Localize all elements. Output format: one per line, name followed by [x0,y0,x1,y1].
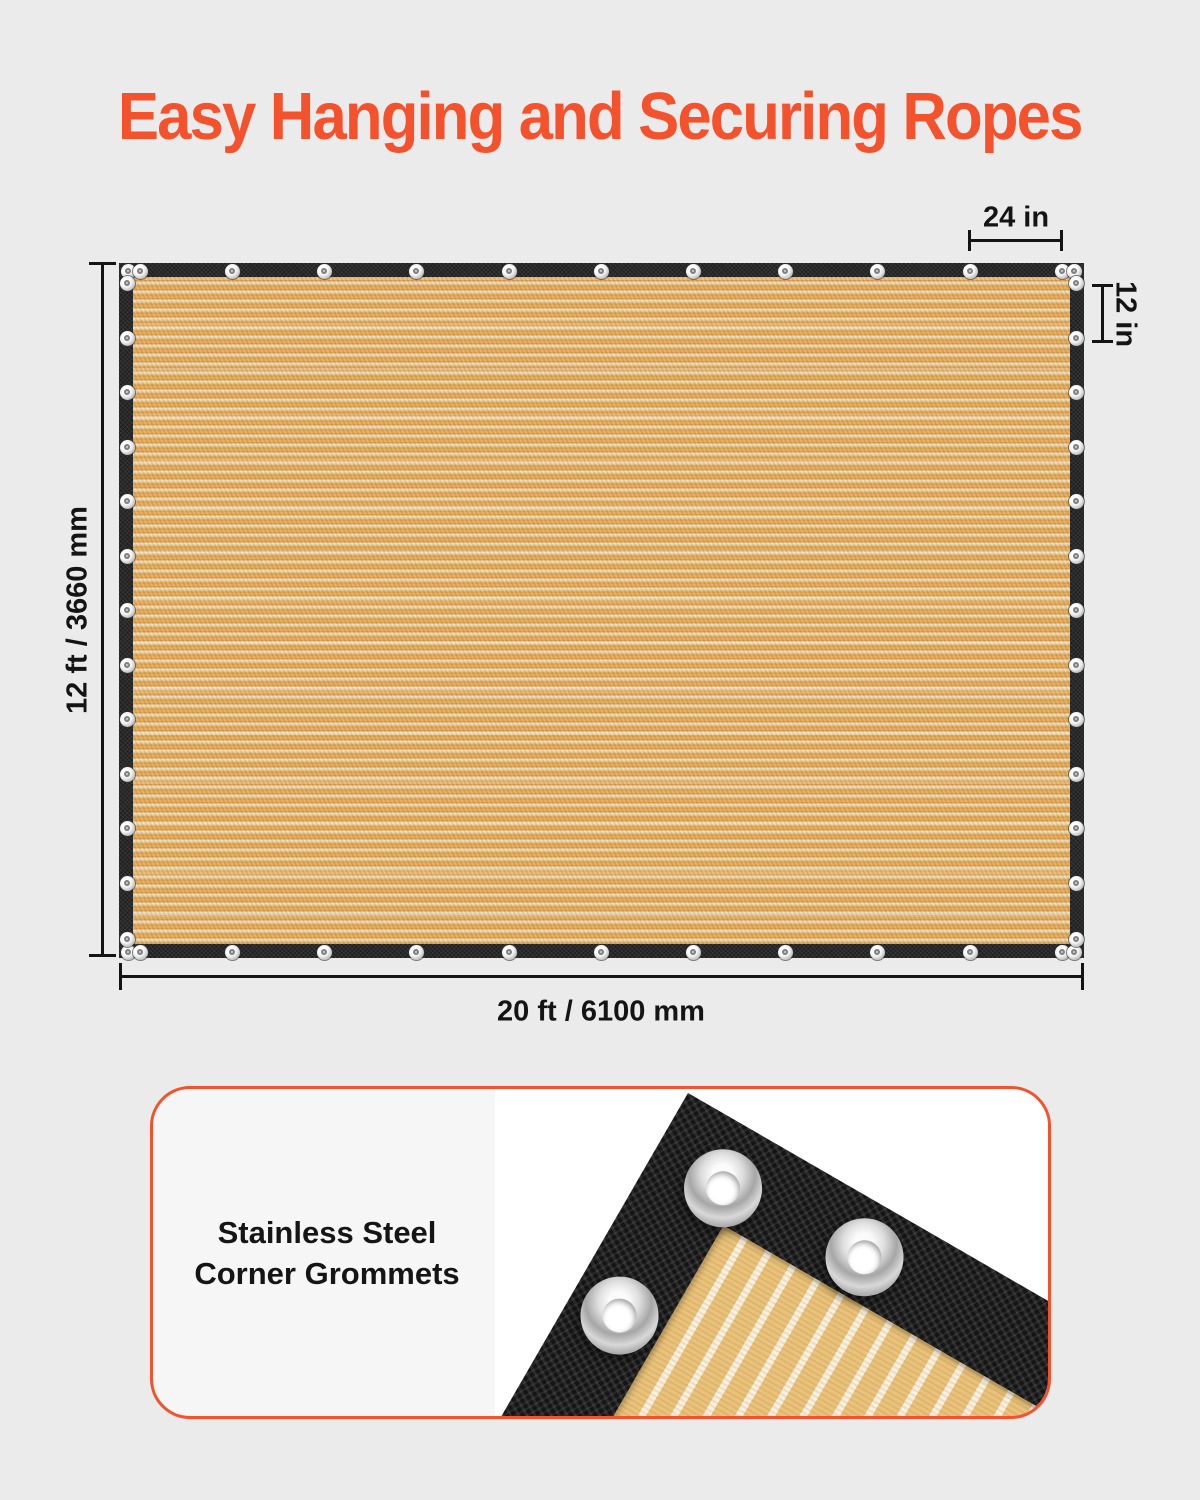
grommet-icon [120,821,135,836]
grommet-icon [120,876,135,891]
grommet-icon [1069,331,1084,346]
grommet-icon [1069,932,1084,947]
grommet-icon [120,549,135,564]
width-dim-tick-right [1081,963,1084,990]
top-spacing-dim-line [970,239,1063,242]
feature-card: Stainless Steel Corner Grommets [150,1086,1051,1419]
grommet-icon [133,264,148,279]
grommet-icon [120,494,135,509]
feature-caption-line2: Corner Grommets [194,1253,459,1294]
page-title-text: Easy Hanging and Securing Ropes [118,78,1082,155]
feature-caption: Stainless Steel Corner Grommets [153,1089,501,1416]
grommet-icon [1069,385,1084,400]
grommet-icon [1069,876,1084,891]
side-spacing-dim-line [1101,286,1104,342]
grommet-icon [1069,440,1084,455]
grommet-icon [670,1135,777,1242]
grommet-icon [120,440,135,455]
grommet-icon [963,945,978,960]
feature-caption-line1: Stainless Steel [218,1212,437,1253]
width-dim-line [119,975,1084,978]
grommet-icon [594,264,609,279]
corner-swatch-fabric [452,1226,1051,1419]
grommet-photo [495,1089,1048,1416]
grommet-icon [120,331,135,346]
shade-cloth-fabric [133,277,1070,944]
grommet-icon [1069,821,1084,836]
product-infographic: Easy Hanging and Securing Ropes 12 ft / … [0,0,1200,1500]
grommet-icon [870,945,885,960]
grommet-icon [686,264,701,279]
shade-cloth [119,263,1084,958]
grommet-icon [502,945,517,960]
grommet-icon [1069,767,1084,782]
page-title: Easy Hanging and Securing Ropes [0,78,1200,155]
grommet-icon [778,264,793,279]
grommet-icon [133,945,148,960]
grommet-icon [409,945,424,960]
top-spacing-label: 24 in [983,202,1049,235]
grommet-icon [963,264,978,279]
grommet-icon [317,945,332,960]
height-dim-tick-top [89,262,116,265]
top-spacing-tick-right [1060,230,1063,251]
height-dim-tick-bottom [89,954,116,957]
grommet-icon [1069,658,1084,673]
grommet-icon [686,945,701,960]
grommet-icon [502,264,517,279]
grommet-icon [409,264,424,279]
grommet-icon [120,767,135,782]
grommet-icon [778,945,793,960]
grommet-icon [120,658,135,673]
grommet-icon [317,264,332,279]
grommet-icon [120,276,135,291]
grommet-icon [594,945,609,960]
grommet-icon [1069,603,1084,618]
grommet-icon [1067,945,1082,960]
grommet-icon [1069,276,1084,291]
grommet-icon [1069,549,1084,564]
grommet-icon [225,945,240,960]
grommet-icon [120,712,135,727]
width-label: 20 ft / 6100 mm [497,996,705,1029]
grommet-icon [120,603,135,618]
grommet-icon [120,932,135,947]
top-spacing-tick-left [968,230,971,251]
grommet-icon [120,385,135,400]
grommet-icon [870,264,885,279]
height-dim-line [101,264,104,957]
grommet-icon [1069,494,1084,509]
grommet-icon [225,264,240,279]
width-dim-tick-left [119,963,122,990]
grommet-icon [1069,712,1084,727]
side-spacing-label: 12 in [1109,281,1142,347]
height-label: 12 ft / 3660 mm [62,506,95,714]
